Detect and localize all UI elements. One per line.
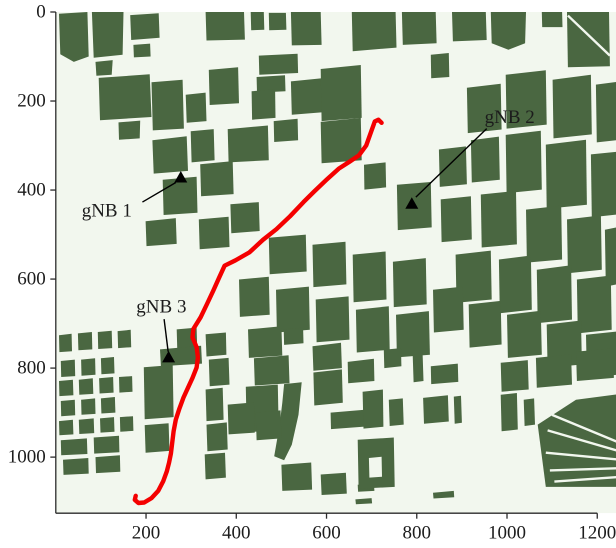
building (363, 390, 384, 429)
building (567, 215, 602, 273)
building (431, 364, 459, 385)
building (469, 301, 502, 348)
gnb-label: gNB 1 (82, 201, 132, 222)
building (402, 12, 437, 45)
building (591, 152, 616, 217)
y-tick-label: 200 (17, 90, 46, 111)
building (321, 65, 362, 121)
building (491, 12, 526, 50)
building (452, 12, 487, 41)
building (200, 161, 233, 196)
building (61, 438, 88, 455)
building (596, 82, 616, 142)
building (152, 136, 188, 173)
building (206, 388, 224, 421)
building (252, 90, 276, 120)
building (59, 334, 72, 352)
building (537, 265, 572, 323)
building (239, 277, 270, 317)
building (119, 376, 133, 393)
building (471, 137, 500, 183)
building (191, 129, 215, 162)
building (313, 369, 342, 405)
building (133, 44, 150, 58)
building (228, 126, 269, 163)
city-map-plot: gNB 1gNB 2gNB 32004006008001000120002004… (0, 0, 616, 548)
building (274, 119, 298, 142)
x-tick-label: 800 (403, 523, 432, 544)
building (81, 398, 95, 414)
building (536, 354, 572, 387)
building (352, 12, 397, 51)
y-tick-label: 600 (17, 268, 46, 289)
map-figure: gNB 1gNB 2gNB 32004006008001000120002004… (0, 0, 616, 548)
building (269, 13, 287, 30)
building (576, 349, 614, 382)
building (96, 455, 121, 473)
building (259, 54, 298, 75)
y-tick-label: 400 (17, 179, 46, 200)
building (423, 395, 449, 424)
building (63, 458, 89, 475)
building (61, 360, 75, 377)
x-tick-label: 1200 (578, 523, 616, 544)
building (501, 393, 518, 431)
x-tick-label: 1000 (488, 523, 526, 544)
building (130, 13, 159, 40)
building (553, 75, 592, 139)
building (100, 417, 115, 433)
building (256, 410, 282, 440)
building (506, 131, 542, 193)
building (316, 296, 350, 342)
building (546, 140, 587, 209)
building (99, 74, 152, 120)
building (59, 12, 89, 62)
building (353, 252, 387, 303)
building (98, 331, 112, 349)
building (364, 162, 386, 189)
building (59, 420, 73, 436)
building (94, 436, 120, 454)
building (119, 121, 141, 140)
building (99, 377, 114, 394)
building (269, 235, 307, 275)
building (209, 358, 230, 386)
building (313, 242, 347, 287)
building (92, 12, 124, 58)
x-tick-label: 400 (222, 523, 251, 544)
building (313, 343, 342, 371)
plot-area (56, 12, 616, 513)
building (524, 398, 535, 426)
building (144, 365, 174, 419)
building (284, 328, 304, 345)
building (393, 258, 427, 307)
building (276, 287, 310, 333)
building (120, 416, 133, 432)
building (384, 348, 402, 368)
building (79, 378, 94, 395)
building (146, 218, 177, 246)
building (61, 400, 75, 417)
building (291, 12, 322, 45)
building (96, 60, 113, 76)
building (348, 359, 375, 384)
building (526, 206, 562, 263)
building (101, 397, 116, 414)
building (331, 410, 368, 430)
building (413, 353, 424, 382)
building (507, 311, 542, 358)
x-tick-label: 200 (132, 523, 161, 544)
y-tick-label: 800 (17, 357, 46, 378)
building (321, 473, 347, 495)
building (542, 12, 563, 27)
y-tick-label: 1000 (8, 446, 46, 467)
building (499, 256, 532, 314)
building (228, 402, 255, 434)
building (389, 398, 404, 426)
building (78, 332, 92, 350)
building (81, 358, 95, 375)
building (254, 355, 290, 385)
y-tick-label: 0 (36, 1, 46, 22)
building (251, 12, 265, 30)
building (396, 311, 430, 357)
building (152, 80, 184, 131)
building (248, 326, 282, 358)
building (501, 360, 529, 392)
building (59, 380, 73, 396)
building (101, 357, 115, 374)
building (79, 418, 94, 434)
building (481, 191, 517, 248)
building (230, 202, 259, 233)
building (441, 196, 472, 242)
building (118, 330, 132, 348)
building (206, 12, 245, 41)
building (433, 287, 464, 333)
building (281, 463, 312, 491)
x-tick-label: 600 (312, 523, 341, 544)
building (207, 422, 228, 451)
building (199, 217, 230, 249)
building (186, 93, 207, 123)
building (291, 78, 323, 115)
building (431, 53, 450, 78)
building (209, 67, 239, 105)
gnb-label: gNB 3 (136, 296, 186, 317)
building (577, 276, 612, 334)
building (356, 306, 390, 352)
building (205, 453, 226, 480)
building (145, 423, 170, 452)
building (206, 333, 227, 357)
gnb-label: gNB 2 (485, 107, 535, 128)
building (454, 396, 462, 424)
